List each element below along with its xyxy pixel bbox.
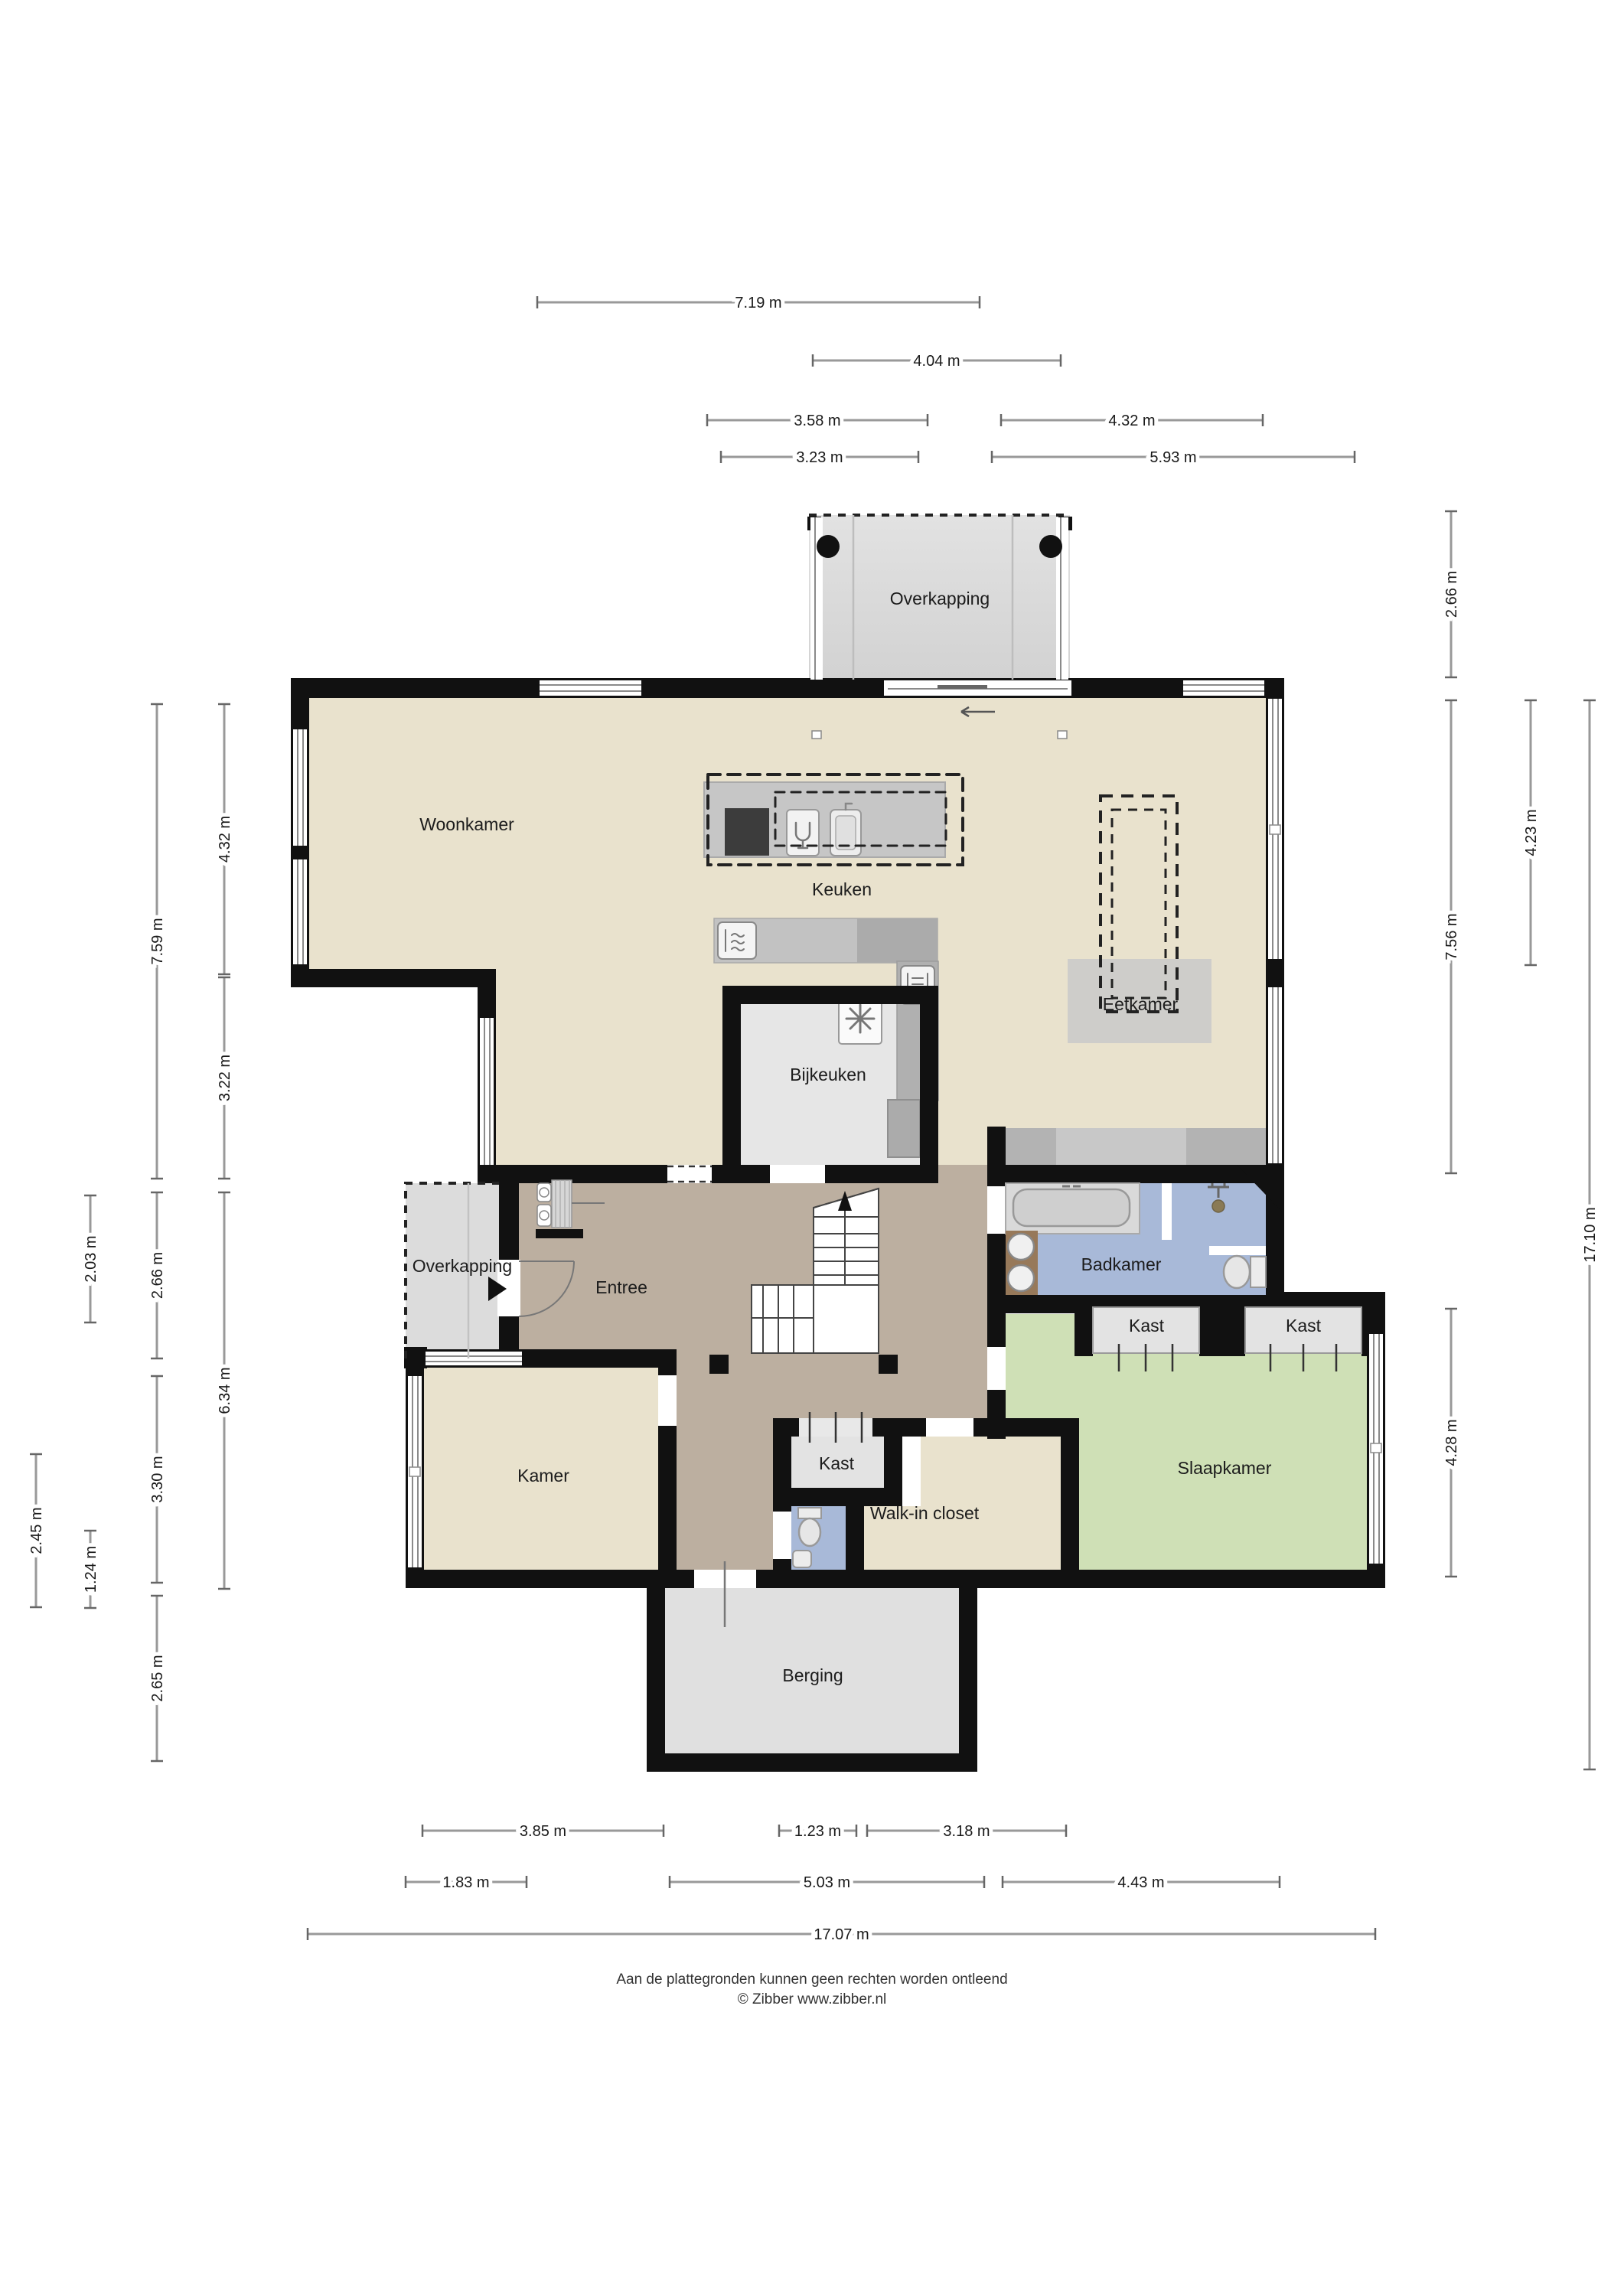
dimension: 3.58 m: [707, 413, 928, 429]
dimension-label: 7.59 m: [149, 918, 166, 964]
wc-sink-icon: [793, 1551, 811, 1567]
wc-toilet-icon: [799, 1518, 820, 1546]
dimension-label: 2.66 m: [149, 1252, 166, 1299]
dimension-label: 7.56 m: [1443, 913, 1460, 960]
dimension-label: 3.18 m: [943, 1823, 990, 1840]
room-label-kast-c: Kast: [819, 1453, 855, 1473]
dimension-label: 3.58 m: [794, 413, 840, 429]
room-label-slaapkamer: Slaapkamer: [1178, 1458, 1272, 1478]
room-label-woonkamer: Woonkamer: [419, 814, 514, 834]
footer-copyright: © Zibber www.zibber.nl: [738, 1991, 887, 2007]
room-label-berging: Berging: [782, 1665, 843, 1685]
toilet-tank: [1251, 1257, 1266, 1287]
toilet-partition: [1209, 1246, 1266, 1255]
dimension-label: 1.24 m: [83, 1546, 99, 1593]
room-label-overkapping-top: Overkapping: [890, 589, 990, 608]
south-counter-light: [1056, 1128, 1186, 1165]
room-label-badkamer: Badkamer: [1081, 1254, 1162, 1274]
floor-plan: OverkappingWoonkamerKeukenEetkamerBijkeu…: [0, 0, 1624, 2296]
cooktop-icon: [725, 808, 769, 856]
walk-in-door: [926, 1418, 973, 1437]
vanity-sink-1-icon: [1008, 1234, 1034, 1260]
dimension-label: 6.34 m: [217, 1367, 233, 1414]
canopy-post-left: [817, 535, 840, 558]
room-label-kast-b: Kast: [1286, 1316, 1322, 1336]
wall-counter-dark: [857, 918, 938, 963]
passage-dashed-opening: [667, 1165, 712, 1183]
dimension-label: 3.30 m: [149, 1456, 166, 1502]
dimension: 1.83 m: [406, 1874, 527, 1891]
dimension: 4.32 m: [217, 704, 233, 974]
bijkeuken-door: [770, 1165, 825, 1183]
dimension-label: 17.07 m: [814, 1926, 869, 1943]
room-label-bijkeuken: Bijkeuken: [790, 1065, 866, 1084]
dimension-label: 7.19 m: [735, 295, 781, 311]
room-label-kamer: Kamer: [517, 1466, 569, 1486]
dimension: 3.22 m: [217, 977, 233, 1179]
slaapkamer-door: [987, 1347, 1006, 1390]
dimension: 4.32 m: [1001, 413, 1263, 429]
dimension: 3.23 m: [721, 449, 918, 466]
dimension: 4.04 m: [813, 353, 1061, 370]
dimension-label: 5.93 m: [1150, 449, 1196, 466]
dimension: 5.03 m: [670, 1874, 984, 1891]
dimension: 2.03 m: [83, 1195, 99, 1322]
wc-door: [773, 1512, 791, 1559]
dimension-label: 2.03 m: [83, 1235, 99, 1282]
dimension-label: 2.66 m: [1443, 571, 1460, 618]
dimension: 4.43 m: [1003, 1874, 1280, 1891]
dimension: 3.30 m: [149, 1376, 166, 1583]
room-label-entree: Entree: [595, 1277, 647, 1297]
dimension: 5.93 m: [992, 449, 1355, 466]
dimension-label: 1.23 m: [794, 1823, 841, 1840]
dimension-label: 2.65 m: [149, 1655, 166, 1701]
canopy-post-right: [1039, 535, 1062, 558]
dimension: 17.07 m: [308, 1926, 1375, 1943]
dimension-label: 3.22 m: [217, 1055, 233, 1101]
dimension: 3.18 m: [867, 1823, 1066, 1840]
dimension-label: 4.32 m: [1108, 413, 1155, 429]
toilet-icon: [1224, 1256, 1250, 1288]
dimension: 2.65 m: [149, 1596, 166, 1761]
dimension: 1.23 m: [779, 1823, 856, 1840]
dimension: 7.19 m: [537, 295, 980, 311]
dimension-label: 4.28 m: [1443, 1419, 1460, 1466]
dimension-label: 4.23 m: [1523, 809, 1540, 856]
shower-partition: [1162, 1183, 1172, 1240]
dimension: 3.85 m: [422, 1823, 664, 1840]
dimension: 4.28 m: [1443, 1309, 1460, 1577]
keuken-niche: [888, 1100, 920, 1157]
shower-drain-icon: [1212, 1200, 1225, 1212]
dimension-label: 2.45 m: [28, 1507, 45, 1554]
dimension: 6.34 m: [217, 1192, 233, 1589]
dimension: 1.24 m: [83, 1531, 99, 1608]
sink-basin: [836, 816, 856, 850]
dimension: 4.23 m: [1523, 700, 1540, 965]
floor-plan-page: OverkappingWoonkamerKeukenEetkamerBijkeu…: [0, 0, 1624, 2296]
dimension: 17.10 m: [1582, 700, 1599, 1769]
dimension: 2.66 m: [1443, 511, 1460, 677]
room-label-walk-in-closet: Walk-in closet: [870, 1503, 980, 1523]
room-label-eetkamer: Eetkamer: [1103, 994, 1179, 1014]
dimension: 2.45 m: [28, 1454, 45, 1607]
meter-cabinet-panel: [552, 1180, 572, 1228]
dimension: 2.66 m: [149, 1192, 166, 1358]
dimension-label: 3.23 m: [796, 449, 843, 466]
badkamer-door: [987, 1186, 1006, 1234]
dimension-label: 4.32 m: [217, 816, 233, 863]
kamer-door: [658, 1375, 677, 1426]
dimension-label: 4.43 m: [1117, 1874, 1164, 1891]
room-label-overkapping-left: Overkapping: [413, 1256, 512, 1276]
footer-disclaimer: Aan de plattegronden kunnen geen rechten…: [616, 1971, 1007, 1988]
dimension-label: 5.03 m: [804, 1874, 850, 1891]
stairs-landing: [752, 1285, 879, 1353]
vanity-sink-2-icon: [1008, 1265, 1034, 1291]
dimension-label: 3.85 m: [520, 1823, 566, 1840]
room-label-kast-a: Kast: [1129, 1316, 1165, 1336]
dimension-label: 1.83 m: [442, 1874, 489, 1891]
dimension: 7.56 m: [1443, 700, 1460, 1173]
ventilation-fan-glyph: [846, 1005, 874, 1032]
dimension-label: 4.04 m: [913, 353, 960, 370]
dimension-label: 17.10 m: [1582, 1207, 1599, 1262]
wc-toilet-tank: [798, 1508, 821, 1518]
room-label-keuken: Keuken: [812, 879, 872, 899]
bathtub-icon: [1013, 1189, 1130, 1226]
dimension: 7.59 m: [149, 704, 166, 1179]
